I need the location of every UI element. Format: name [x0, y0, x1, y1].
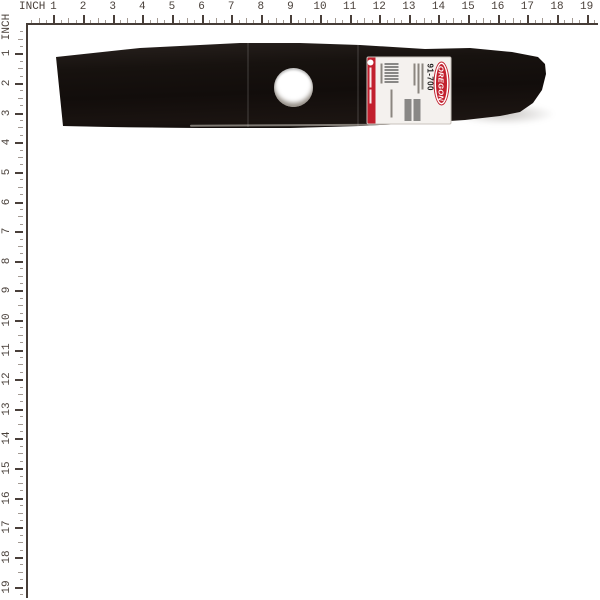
- top-ruler-number: 9: [287, 1, 294, 13]
- left-ruler-number: 15: [1, 461, 13, 474]
- left-ruler-tick: [20, 490, 23, 491]
- top-ruler-tick: [194, 20, 195, 23]
- left-ruler-tick: [20, 520, 23, 521]
- left-ruler-number: 12: [1, 373, 13, 386]
- top-ruler-tick: [357, 20, 358, 23]
- left-ruler-number: 6: [1, 198, 13, 205]
- top-ruler-tick: [98, 18, 99, 23]
- left-ruler-tick: [15, 202, 23, 204]
- left-ruler-tick: [20, 135, 23, 136]
- left-ruler-tick: [15, 172, 23, 174]
- top-ruler-tick: [113, 15, 115, 23]
- top-ruler-tick: [572, 18, 573, 23]
- top-ruler-number: 1: [50, 1, 57, 13]
- top-ruler-tick: [535, 20, 536, 23]
- top-ruler-tick: [542, 18, 543, 23]
- top-ruler-tick: [483, 18, 484, 23]
- left-ruler-number: 14: [1, 432, 13, 445]
- top-ruler-tick: [224, 20, 225, 23]
- top-ruler-tick: [409, 15, 411, 23]
- left-ruler-tick: [18, 572, 23, 573]
- top-ruler-number: 11: [343, 1, 356, 13]
- left-ruler-tick: [20, 90, 23, 91]
- left-ruler-line: [26, 23, 28, 598]
- top-ruler-tick: [53, 15, 55, 23]
- left-ruler-tick: [18, 157, 23, 158]
- top-ruler-tick: [31, 20, 32, 23]
- oregon-logo-oval: OREGON: [434, 62, 448, 104]
- left-ruler-tick: [15, 320, 23, 322]
- top-ruler-tick: [105, 20, 106, 23]
- top-ruler-tick: [557, 15, 559, 23]
- top-ruler-number: 6: [198, 1, 205, 13]
- left-ruler-tick: [20, 194, 23, 195]
- top-ruler-line: [26, 23, 598, 25]
- left-ruler-number: 17: [1, 521, 13, 534]
- left-ruler-tick: [15, 290, 23, 292]
- left-ruler-number: 4: [1, 139, 13, 146]
- top-ruler-tick: [335, 18, 336, 23]
- label-fine-print: [421, 63, 423, 89]
- left-ruler-tick: [20, 76, 23, 77]
- top-ruler-tick: [268, 20, 269, 23]
- left-ruler-tick: [20, 253, 23, 254]
- top-ruler-number: 19: [580, 1, 593, 13]
- top-ruler-tick: [120, 20, 121, 23]
- top-ruler-number: 17: [521, 1, 534, 13]
- left-ruler-number: 7: [1, 228, 13, 235]
- top-ruler-tick: [209, 20, 210, 23]
- left-ruler-tick: [18, 127, 23, 128]
- left-ruler-tick: [20, 416, 23, 417]
- top-ruler-number: 12: [373, 1, 386, 13]
- top-ruler-tick: [39, 18, 40, 23]
- top-ruler-tick: [320, 15, 322, 23]
- left-ruler-tick: [18, 187, 23, 188]
- left-ruler-tick: [20, 476, 23, 477]
- left-ruler-tick: [15, 379, 23, 381]
- top-ruler-tick: [446, 20, 447, 23]
- label-fine-print: [417, 63, 419, 93]
- top-ruler-tick: [431, 20, 432, 23]
- left-ruler-number: 11: [1, 343, 13, 356]
- left-ruler-tick: [20, 401, 23, 402]
- mower-blade: [50, 40, 550, 132]
- left-ruler-tick: [18, 513, 23, 514]
- left-ruler-tick: [15, 527, 23, 529]
- top-ruler-tick: [164, 20, 165, 23]
- top-ruler-number: 5: [169, 1, 176, 13]
- top-ruler-number: 14: [432, 1, 445, 13]
- top-ruler-tick: [505, 20, 506, 23]
- left-ruler-number: 19: [1, 580, 13, 593]
- top-ruler-unit-label: INCH: [19, 1, 45, 13]
- left-ruler-tick: [15, 261, 23, 263]
- top-ruler-tick: [261, 15, 263, 23]
- label-fine-print: [390, 89, 392, 117]
- left-ruler-tick: [20, 550, 23, 551]
- left-ruler-tick: [15, 498, 23, 500]
- top-ruler-tick: [142, 15, 144, 23]
- strip-logo-icon: [367, 59, 373, 65]
- top-ruler-tick: [401, 20, 402, 23]
- left-ruler-tick: [20, 46, 23, 47]
- left-ruler-tick: [15, 113, 23, 115]
- top-ruler-tick: [253, 20, 254, 23]
- top-ruler-number: 18: [550, 1, 563, 13]
- left-ruler-tick: [15, 587, 23, 589]
- top-ruler-tick: [202, 15, 204, 23]
- left-ruler-tick: [20, 150, 23, 151]
- top-ruler-tick: [327, 20, 328, 23]
- top-ruler-tick: [379, 15, 381, 23]
- left-ruler-number: 8: [1, 257, 13, 264]
- top-ruler-tick: [364, 18, 365, 23]
- left-ruler-number: 16: [1, 491, 13, 504]
- top-ruler-tick: [461, 20, 462, 23]
- top-ruler-tick: [46, 20, 47, 23]
- left-ruler-tick: [20, 564, 23, 565]
- left-ruler-tick: [15, 231, 23, 233]
- top-ruler-tick: [394, 18, 395, 23]
- top-ruler-number: 4: [139, 1, 146, 13]
- left-ruler-tick: [20, 579, 23, 580]
- top-ruler-tick: [387, 20, 388, 23]
- left-ruler-tick: [18, 542, 23, 543]
- top-ruler-tick: [90, 20, 91, 23]
- top-ruler-tick: [76, 20, 77, 23]
- top-ruler-tick: [127, 18, 128, 23]
- top-ruler-tick: [216, 18, 217, 23]
- left-ruler-tick: [15, 409, 23, 411]
- left-ruler-tick: [15, 438, 23, 440]
- left-ruler-tick: [20, 327, 23, 328]
- left-ruler-tick: [15, 83, 23, 85]
- left-ruler-tick: [20, 431, 23, 432]
- left-ruler-tick: [18, 39, 23, 40]
- left-ruler-tick: [18, 483, 23, 484]
- left-ruler-tick: [20, 446, 23, 447]
- blade-center-hole: [274, 68, 313, 107]
- top-ruler-tick: [157, 18, 158, 23]
- top-ruler-tick: [416, 20, 417, 23]
- left-ruler-tick: [18, 216, 23, 217]
- barcode-caption: [381, 63, 383, 83]
- top-ruler-number: 2: [80, 1, 87, 13]
- top-ruler-tick: [520, 20, 521, 23]
- left-ruler-number: 13: [1, 402, 13, 415]
- top-ruler-number: 10: [313, 1, 326, 13]
- top-ruler-tick: [550, 20, 551, 23]
- left-ruler-tick: [18, 364, 23, 365]
- top-ruler-tick: [187, 18, 188, 23]
- top-ruler-tick: [290, 15, 292, 23]
- top-ruler-tick: [298, 20, 299, 23]
- top-ruler-tick: [513, 18, 514, 23]
- top-ruler-tick: [305, 18, 306, 23]
- left-ruler-tick: [20, 342, 23, 343]
- left-ruler-number: 18: [1, 550, 13, 563]
- top-ruler-tick: [239, 20, 240, 23]
- top-ruler-tick: [587, 15, 589, 23]
- left-ruler-tick: [18, 453, 23, 454]
- top-ruler-number: 15: [461, 1, 474, 13]
- top-ruler-number: 7: [228, 1, 235, 13]
- barcode: [404, 99, 411, 121]
- brand-name: OREGON: [437, 65, 446, 100]
- left-ruler-tick: [20, 105, 23, 106]
- product-label-face: OREGON 91-700: [366, 56, 451, 124]
- left-ruler-tick: [18, 424, 23, 425]
- label-fine-print: [413, 63, 415, 85]
- top-ruler-tick: [527, 15, 529, 23]
- left-ruler-tick: [15, 350, 23, 352]
- top-ruler-tick: [172, 15, 174, 23]
- left-ruler-tick: [20, 283, 23, 284]
- top-ruler-tick: [372, 20, 373, 23]
- left-ruler-number: 10: [1, 313, 13, 326]
- top-ruler-tick: [476, 20, 477, 23]
- top-ruler-tick: [564, 20, 565, 23]
- left-ruler-tick: [20, 61, 23, 62]
- left-ruler-tick: [20, 268, 23, 269]
- left-ruler-tick: [20, 120, 23, 121]
- top-ruler-tick: [276, 18, 277, 23]
- top-ruler-number: 13: [402, 1, 415, 13]
- top-ruler-tick: [246, 18, 247, 23]
- top-ruler-tick: [453, 18, 454, 23]
- top-ruler-tick: [135, 20, 136, 23]
- left-ruler-tick: [20, 505, 23, 506]
- barcode: [413, 99, 420, 121]
- top-ruler-tick: [438, 15, 440, 23]
- left-ruler-tick: [20, 209, 23, 210]
- left-ruler-tick: [20, 179, 23, 180]
- top-ruler-tick: [313, 20, 314, 23]
- top-ruler-tick: [179, 20, 180, 23]
- left-ruler-tick: [20, 357, 23, 358]
- barcode: [384, 63, 398, 83]
- left-ruler-tick: [20, 461, 23, 462]
- top-ruler-tick: [579, 20, 580, 23]
- left-ruler-tick: [15, 468, 23, 470]
- left-ruler-tick: [15, 557, 23, 559]
- warning-strip: [366, 57, 375, 124]
- left-ruler-tick: [20, 372, 23, 373]
- left-ruler-tick: [20, 164, 23, 165]
- warning-fine-print: [369, 67, 371, 87]
- left-ruler-tick: [20, 387, 23, 388]
- top-ruler-tick: [342, 20, 343, 23]
- left-ruler-tick: [18, 305, 23, 306]
- left-ruler-number: 9: [1, 287, 13, 294]
- left-ruler-tick: [20, 31, 23, 32]
- left-ruler-tick: [18, 335, 23, 336]
- left-ruler-tick: [18, 276, 23, 277]
- top-ruler-tick: [350, 15, 352, 23]
- blade-bend-crease: [247, 43, 249, 127]
- top-ruler-number: 3: [109, 1, 116, 13]
- product-label: OREGON 91-700: [366, 56, 451, 124]
- part-number-text: 91-700: [425, 63, 434, 90]
- left-ruler-number: 5: [1, 169, 13, 176]
- left-ruler-number: 2: [1, 80, 13, 87]
- left-ruler-unit-label: INCH: [1, 12, 13, 42]
- top-ruler-number: 16: [491, 1, 504, 13]
- left-ruler-tick: [20, 224, 23, 225]
- left-ruler-number: 3: [1, 109, 13, 116]
- left-ruler-tick: [18, 98, 23, 99]
- top-ruler-tick: [68, 18, 69, 23]
- top-ruler-tick: [498, 15, 500, 23]
- top-ruler-tick: [83, 15, 85, 23]
- left-ruler-tick: [20, 239, 23, 240]
- left-ruler-tick: [20, 535, 23, 536]
- top-ruler-tick: [231, 15, 233, 23]
- left-ruler-tick: [20, 594, 23, 595]
- left-ruler-tick: [20, 298, 23, 299]
- top-ruler-tick: [490, 20, 491, 23]
- top-ruler-tick: [283, 20, 284, 23]
- left-ruler-number: 1: [1, 50, 13, 57]
- left-ruler-tick: [18, 68, 23, 69]
- top-ruler-number: 8: [257, 1, 264, 13]
- top-ruler-tick: [594, 20, 595, 23]
- blade-bend-crease: [357, 43, 359, 127]
- left-ruler-tick: [15, 142, 23, 144]
- top-ruler-tick: [424, 18, 425, 23]
- top-ruler-tick: [150, 20, 151, 23]
- top-ruler-tick: [468, 15, 470, 23]
- left-ruler-tick: [15, 53, 23, 55]
- left-ruler-tick: [20, 313, 23, 314]
- left-ruler-tick: [18, 246, 23, 247]
- top-ruler-tick: [61, 20, 62, 23]
- left-ruler-tick: [18, 394, 23, 395]
- warning-fine-print: [369, 89, 371, 103]
